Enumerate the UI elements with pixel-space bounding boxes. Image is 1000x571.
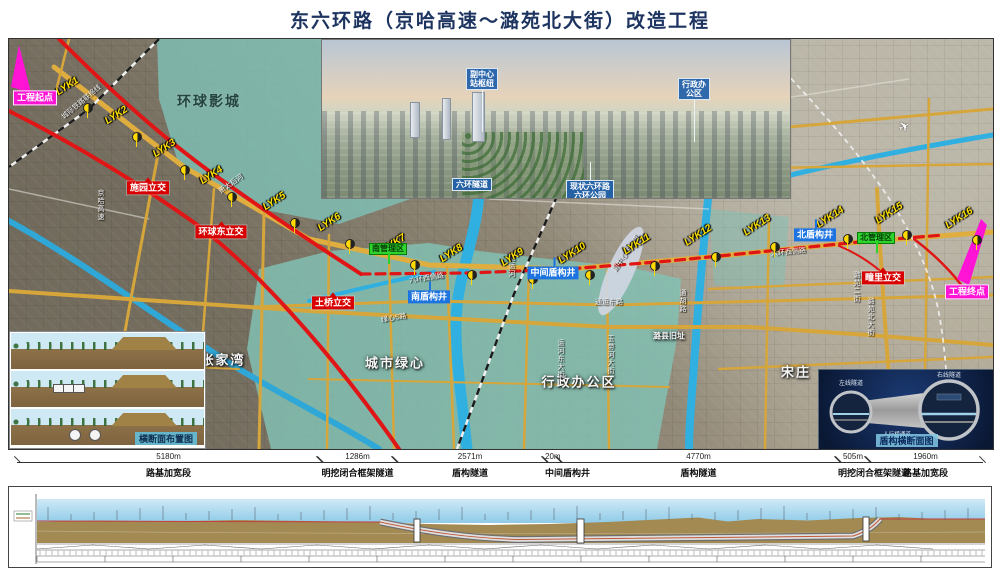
shield-inset-caption: 盾构横断面图: [875, 434, 937, 447]
render-callout-leader: [694, 100, 695, 142]
cross-section-caption: 横断面布置图: [135, 432, 197, 445]
interchange-label: 土桥立交: [312, 296, 354, 309]
street-label: 运河东大街: [555, 339, 565, 379]
milestone-label: LYK12: [682, 223, 713, 249]
map-canvas: ✈ LYK1LYK2LYK3LYK4LYK5LYK6LYK7LYK8LYK9LY…: [8, 38, 994, 450]
street-label: 京哈高速: [95, 189, 105, 221]
street-label: 通胡路: [677, 289, 687, 313]
milestone-label: LYK3: [151, 137, 178, 160]
scale-segment: 2571m盾构隧道: [395, 452, 545, 482]
segment-name-label: 盾构隧道: [395, 466, 545, 479]
project-terminal-label: 工程起点: [13, 90, 57, 105]
area-label: 宋庄: [781, 362, 811, 381]
street-label: 通运东路: [595, 297, 623, 307]
milestone-pin: [227, 192, 237, 202]
milestone-label: LYK15: [873, 201, 904, 227]
embankment: [111, 337, 177, 350]
dimension-line: [17, 462, 320, 463]
segment-length-label: 2571m: [395, 452, 545, 461]
milestone-pin: [132, 132, 142, 142]
milestone-label: LYK13: [741, 213, 772, 239]
area-label: 潞县旧址: [653, 331, 685, 342]
frame-tunnel-box: [53, 384, 85, 393]
milestone-pin: [180, 165, 190, 175]
segment-length-label: 4770m: [559, 452, 838, 461]
interchange-label: 施园立交: [127, 181, 169, 194]
milestone-label: LYK16: [943, 206, 974, 232]
dimension-line: [320, 462, 395, 463]
street-label: 潞苑二街: [851, 271, 861, 303]
north-shaft: [863, 517, 869, 541]
milestone-label: LYK10: [556, 241, 587, 267]
render-tower: [410, 102, 420, 138]
page-title: 东六环路（京哈高速～潞苑北大街）改造工程: [0, 6, 1000, 33]
cross-section-panel-1: [11, 333, 204, 369]
longitudinal-profile: [8, 486, 992, 568]
street-label: 绿心S路: [380, 311, 407, 325]
milestone-pin: [410, 260, 420, 270]
milestone-label: LYK2: [103, 104, 130, 127]
dimension-line: [559, 462, 838, 463]
milestone-pin: [345, 239, 355, 249]
render-callout-label: 副中心站枢纽: [466, 68, 498, 90]
middle-shaft: [577, 519, 584, 543]
profile-svg: [8, 486, 992, 568]
milestone-pin: [467, 270, 477, 280]
dimension-line: [868, 462, 983, 463]
dimension-line: [838, 462, 868, 463]
cross-section-inset: 横断面布置图: [9, 331, 206, 449]
render-callout-label: 现状六环路六环公园: [566, 180, 614, 199]
milestone-pin: [902, 230, 912, 240]
milestone-pin: [290, 218, 300, 228]
milestone-pin: [650, 261, 660, 271]
scale-segment: 4770m盾构隧道: [559, 452, 838, 482]
cross-section-panel-2: [11, 371, 204, 407]
milestone-label: LYK8: [438, 242, 465, 265]
area-label: 张家湾: [200, 350, 245, 369]
milestone-pin: [711, 252, 721, 262]
project-terminal-label: 工程终点: [945, 284, 989, 299]
left-tube-section: [831, 392, 871, 432]
milestone-pin: [972, 235, 982, 245]
milestone-pin: [585, 270, 595, 280]
milestone-label: LYK6: [316, 211, 343, 234]
embankment: [111, 375, 177, 388]
right-tube-section: [920, 381, 978, 439]
airplane-icon: ✈: [896, 117, 913, 136]
south-shaft: [414, 519, 420, 542]
milestone-label: LYK14: [814, 205, 845, 231]
milestone-pin: [83, 103, 93, 113]
shaft-label: 南盾构井: [408, 290, 450, 303]
render-tower: [472, 92, 485, 142]
milestone-label: LYK1: [54, 75, 81, 98]
perspective-render-inset: 副中心站枢纽行政办公区六环隧道现状六环路六环公园: [321, 39, 791, 199]
street-label: 潞苑北大街: [865, 297, 875, 337]
segment-name-label: 盾构隧道: [559, 466, 838, 479]
scale-segment: 1960m路基加宽段: [868, 452, 983, 482]
scale-segment: 1286m明挖闭合框架隧道: [320, 452, 395, 482]
render-callout-leader: [482, 90, 483, 132]
render-tower: [442, 98, 451, 140]
right-tube-label: 右线隧道: [937, 371, 961, 379]
segment-name-label: 路基加宽段: [868, 466, 983, 479]
dimension-line: [545, 462, 559, 463]
segment-name-label: 明挖闭合框架隧道: [320, 466, 395, 479]
shaft-label: 中间盾构井: [527, 266, 578, 279]
interchange-label: 环球东立交: [195, 225, 246, 238]
render-callout-label: 六环隧道: [452, 178, 492, 191]
shaft-label: 北盾构井: [794, 228, 836, 241]
segment-length-label: 1960m: [868, 452, 983, 461]
milestone-label: LYK5: [261, 190, 288, 213]
area-label: 城市绿心: [365, 353, 425, 372]
milestone-pin: [843, 234, 853, 244]
segment-length-label: 1286m: [320, 452, 395, 461]
dimension-line: [395, 462, 545, 463]
scale-segment: 5180m路基加宽段: [17, 452, 320, 482]
render-callout-leader: [590, 162, 591, 180]
shield-tube-circle: [69, 429, 81, 441]
street-label: 玉带河大街: [605, 335, 615, 375]
segment-name-label: 路基加宽段: [17, 466, 320, 479]
segment-name-label: 中间盾构井: [545, 466, 559, 479]
interchange-label: 疃里立交: [862, 271, 904, 284]
scale-segment: 505m明挖闭合框架隧道: [838, 452, 868, 482]
shield-tunnel-inset: 左线隧道 右线隧道 人行横通道 盾构横断面图: [818, 369, 994, 450]
segment-length-label: 5180m: [17, 452, 320, 461]
segment-name-label: 明挖闭合框架隧道: [838, 466, 868, 479]
area-label: 环球影城: [177, 91, 241, 111]
segment-scale-bar: 5180m路基加宽段1286m明挖闭合框架隧道2571m盾构隧道20m中间盾构井…: [8, 452, 992, 482]
left-tube-label: 左线隧道: [839, 379, 863, 387]
render-callout-label: 行政办公区: [678, 78, 710, 100]
sheet: 东六环路（京哈高速～潞苑北大街）改造工程: [0, 0, 1000, 571]
shield-tube-circle: [89, 429, 101, 441]
management-zone-label: 南管理区: [369, 243, 407, 255]
milestone-pin: [770, 242, 780, 252]
management-zone-label: 北管理区: [857, 232, 895, 244]
segment-length-label: 505m: [838, 452, 868, 461]
embankment: [111, 413, 177, 426]
